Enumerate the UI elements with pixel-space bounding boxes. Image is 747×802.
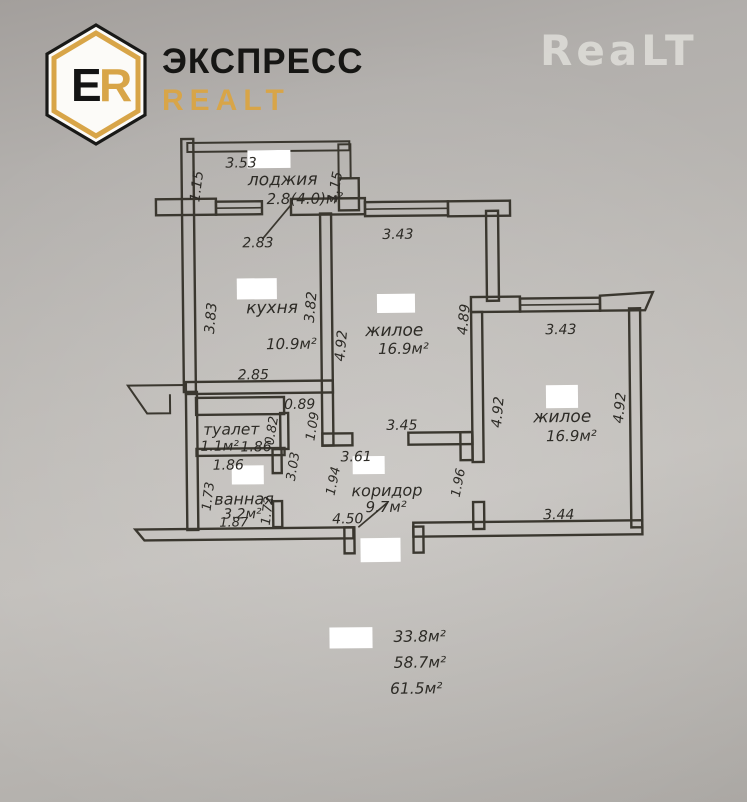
floorplan-drawing: 3.53 1.15 лоджия 2.8(4.0)м² 1.15 2.83 3.… (0, 0, 747, 802)
living1-window-midline (365, 208, 448, 209)
dim-niche-width: 0.89 (284, 397, 315, 413)
dim-loggia-top: 3.53 (225, 155, 256, 171)
total-area: 58.7м² (394, 653, 447, 672)
redaction-box-totals (329, 627, 372, 648)
room-label-toilet: туалет (203, 420, 260, 439)
wall-left-notch (128, 385, 186, 414)
area-label-living2: 16.9м² (546, 427, 597, 446)
wall-living1-bottom (408, 432, 472, 445)
dim-niche-height: 1.09 (303, 411, 323, 442)
dim-living2-right: 4.92 (611, 392, 630, 425)
total-full-area: 61.5м² (390, 679, 443, 698)
dim-living1-left: 4.92 (332, 329, 351, 362)
dim-bath-side: 3.03 (284, 451, 304, 482)
dim-living1-bottom: 3.45 (386, 418, 417, 434)
floorplan-photo: E R ЭКСПРЕСС REALT ReaLT (0, 0, 747, 802)
wall-living2-topright (600, 292, 653, 311)
area-label-toilet: 1.1м² (200, 438, 239, 454)
wall-living2-left-stub (473, 502, 484, 529)
redaction-box-living1 (377, 294, 415, 313)
dim-corridor-length: 4.50 (332, 511, 363, 527)
wall-top-left-stub (156, 199, 216, 216)
wall-living1-right (486, 211, 499, 301)
dim-kitchen-top: 2.83 (242, 235, 273, 251)
dim-bath-bottom: 1.87 (219, 515, 249, 530)
area-label-kitchen: 10.9м² (266, 335, 317, 354)
balcony-door-swing (262, 205, 291, 239)
wall-bath-right-upper (273, 449, 282, 473)
dim-bath-right: 1.72 (259, 495, 278, 526)
dim-kitchen-right: 3.82 (302, 291, 321, 324)
room-label-living1: жилое (364, 321, 423, 342)
redaction-box-living2 (546, 385, 578, 408)
dim-kitchen-left: 3.83 (202, 302, 221, 335)
wall-living2-topleft (471, 297, 520, 313)
dim-corridor-top: 3.61 (341, 449, 372, 465)
wall-top-right-block (448, 201, 510, 217)
dim-corridor-left: 1.94 (324, 465, 344, 496)
dim-living1-right: 4.89 (455, 303, 474, 336)
redaction-box-kitchen (237, 278, 277, 299)
area-label-corridor: 9.7м² (365, 498, 406, 516)
living2-window-midline (520, 304, 600, 305)
entrance-post-right (413, 527, 423, 553)
room-label-loggia: лоджия (247, 170, 318, 191)
area-label-living1: 16.9м² (378, 339, 429, 358)
wall-bottom-right (413, 520, 642, 536)
dim-living2-top: 3.43 (545, 322, 576, 338)
dim-living1-top: 3.43 (382, 227, 413, 243)
dim-living2-bottom: 3.44 (543, 507, 574, 523)
wall-kitchen-living1 (320, 214, 333, 446)
total-living-area: 33.8м² (393, 627, 446, 646)
living1-door-jamb-left (322, 433, 352, 445)
room-label-kitchen: кухня (246, 298, 298, 319)
dim-toilet-height: 0.82 (262, 415, 282, 446)
niche-band (196, 397, 284, 415)
redaction-box-entrance (360, 538, 400, 562)
dim-corridor-right: 1.96 (449, 467, 469, 498)
wall-living2-right (629, 308, 642, 527)
dim-bath-top: 1.86 (213, 457, 244, 473)
living1-door-jamb-post (460, 432, 472, 460)
dim-living2-left: 4.92 (489, 396, 508, 429)
dim-kitchen-bottom: 2.85 (238, 367, 269, 383)
room-label-living2: жилое (532, 407, 591, 428)
